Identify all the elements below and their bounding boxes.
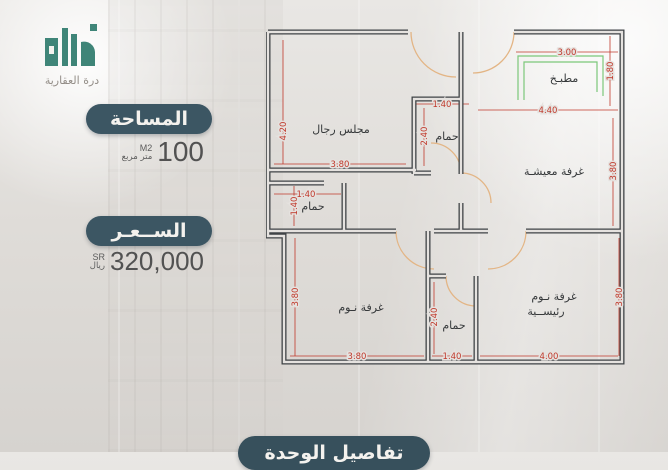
room-label-bath-top: حمام <box>435 130 458 143</box>
dim-master-height: 3.80 <box>615 288 625 307</box>
dim-kitchen-depth: 1.80 <box>606 62 616 81</box>
room-label-bedroom: غرفة نـوم <box>338 301 383 314</box>
room-label-master-1: غرفة نـوم <box>531 290 576 303</box>
floor-plan-svg: مجلس رجال حمام مطبـخ غرفة معيشـة حمام غر… <box>266 26 630 378</box>
price-unit-arabic: ريال <box>90 262 105 272</box>
brand-name: درة العقارية <box>34 74 110 87</box>
dim-bath-top-width: 1.40 <box>433 100 452 110</box>
area-value-row: M2 متر مربع 100 <box>86 138 204 166</box>
brand-logo: درة العقارية <box>34 22 110 87</box>
footer-banner-label: تفاصيل الوحدة <box>264 442 403 464</box>
dim-bedroom-height: 3.80 <box>291 288 301 307</box>
dim-bath-bot-width: 1.40 <box>443 352 462 362</box>
price-value-row: SR ريال 320,000 <box>86 248 204 274</box>
dim-living-height: 3.80 <box>609 162 619 181</box>
dim-bath-bot-height: 2.40 <box>430 308 440 327</box>
footer-banner: تفاصيل الوحدة <box>238 436 430 470</box>
area-banner-label: المساحة <box>110 108 188 130</box>
brand-logo-icon <box>43 22 101 68</box>
room-label-living: غرفة معيشـة <box>524 165 584 178</box>
flyer-root: { "brand": { "name": "درة العقارية" }, "… <box>0 0 668 452</box>
dim-bedroom-width: 3.80 <box>348 352 367 362</box>
room-label-kitchen: مطبـخ <box>550 72 579 85</box>
room-label-majlis: مجلس رجال <box>312 123 370 136</box>
dim-bath-mid-height: 1.40 <box>290 197 300 216</box>
price-banner-label: الســعـر <box>111 220 186 242</box>
room-label-bath-bottom: حمام <box>442 319 465 332</box>
area-units: M2 متر مربع <box>122 143 153 163</box>
area-banner: المساحة <box>86 104 212 134</box>
room-label-bath-mid: حمام <box>301 200 324 213</box>
price-units: SR ريال <box>90 252 105 272</box>
room-label-master-2: رئيســية <box>527 305 564 318</box>
dim-majlis-width: 3.80 <box>331 160 350 170</box>
dim-living-width: 4.40 <box>539 106 558 116</box>
price-value: 320,000 <box>110 248 204 274</box>
area-value: 100 <box>157 138 204 166</box>
price-banner: الســعـر <box>86 216 212 246</box>
floor-plan: مجلس رجال حمام مطبـخ غرفة معيشـة حمام غر… <box>266 26 630 378</box>
dim-kitchen-width: 3.00 <box>558 48 577 58</box>
area-unit-arabic: متر مربع <box>122 153 153 163</box>
dim-bath-top-height: 2.40 <box>420 127 430 146</box>
dim-master-width: 4.00 <box>540 352 559 362</box>
dim-majlis-height: 4.20 <box>279 122 289 141</box>
dimension-labels: 4.20 3.80 1.40 2.40 3.00 1.80 4.40 3.80 … <box>279 48 625 362</box>
